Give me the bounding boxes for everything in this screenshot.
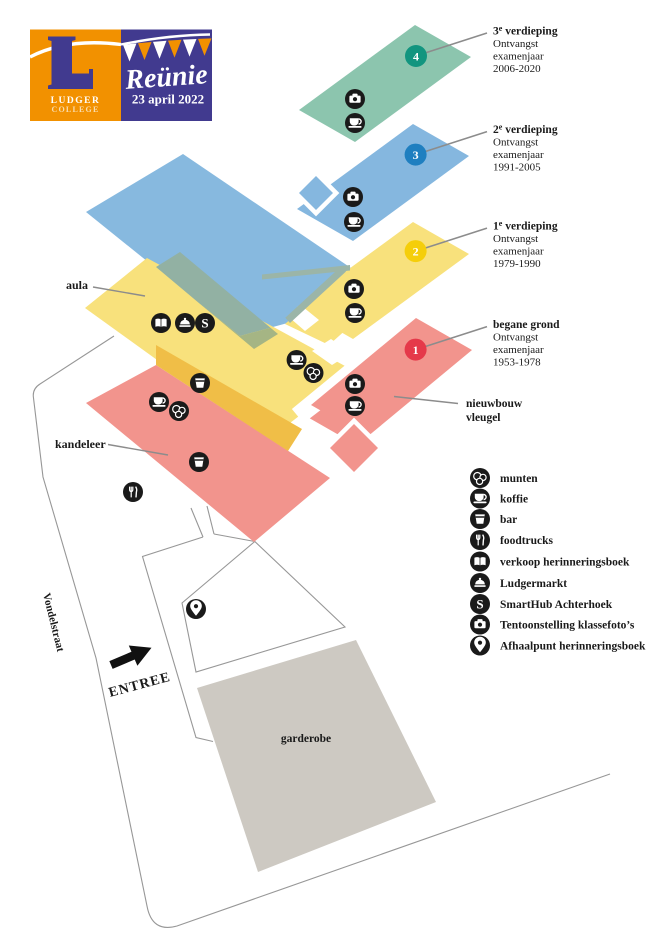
svg-text:garderobe: garderobe [281, 733, 331, 745]
svg-text:2e verdieping: 2e verdieping [493, 123, 558, 137]
svg-text:SmartHub Achterhoek: SmartHub Achterhoek [500, 599, 613, 611]
svg-text:Ontvangst: Ontvangst [493, 332, 538, 344]
svg-text:23 april 2022: 23 april 2022 [132, 92, 204, 107]
svg-text:1: 1 [413, 343, 419, 357]
svg-text:Tentoonstelling klassefoto’s: Tentoonstelling klassefoto’s [500, 620, 635, 632]
svg-text:Ontvangst: Ontvangst [493, 137, 538, 149]
svg-text:vleugel: vleugel [466, 412, 501, 424]
svg-text:verkoop herinneringsboek: verkoop herinneringsboek [500, 557, 630, 569]
svg-text:2: 2 [413, 245, 419, 259]
svg-text:bar: bar [500, 514, 517, 526]
svg-text:examenjaar: examenjaar [493, 246, 544, 258]
svg-text:examenjaar: examenjaar [493, 344, 544, 356]
svg-text:munten: munten [500, 473, 538, 485]
svg-text:2006-2020: 2006-2020 [493, 63, 541, 75]
svg-text:1991-2005: 1991-2005 [493, 162, 541, 174]
svg-text:Ontvangst: Ontvangst [493, 233, 538, 245]
svg-text:kandeleer: kandeleer [55, 437, 106, 451]
svg-text:3: 3 [413, 148, 419, 162]
svg-text:Reünie: Reünie [123, 59, 208, 96]
svg-text:examenjaar: examenjaar [493, 149, 544, 161]
svg-text:Afhaalpunt herinneringsboek: Afhaalpunt herinneringsboek [500, 641, 646, 653]
svg-text:Ludgermarkt: Ludgermarkt [500, 578, 567, 590]
svg-text:1979-1990: 1979-1990 [493, 258, 541, 270]
svg-text:foodtrucks: foodtrucks [500, 535, 554, 547]
svg-text:COLLEGE: COLLEGE [52, 105, 100, 114]
svg-text:Ontvangst: Ontvangst [493, 38, 538, 50]
svg-text:koffie: koffie [500, 494, 528, 506]
svg-text:examenjaar: examenjaar [493, 51, 544, 63]
svg-text:aula: aula [66, 278, 88, 292]
svg-text:1e verdieping: 1e verdieping [493, 219, 558, 233]
svg-text:4: 4 [413, 50, 419, 64]
svg-text:1953-1978: 1953-1978 [493, 357, 541, 369]
svg-text:begane grond: begane grond [493, 319, 560, 331]
svg-text:3e verdieping: 3e verdieping [493, 24, 558, 38]
svg-text:nieuwbouw: nieuwbouw [466, 398, 523, 410]
